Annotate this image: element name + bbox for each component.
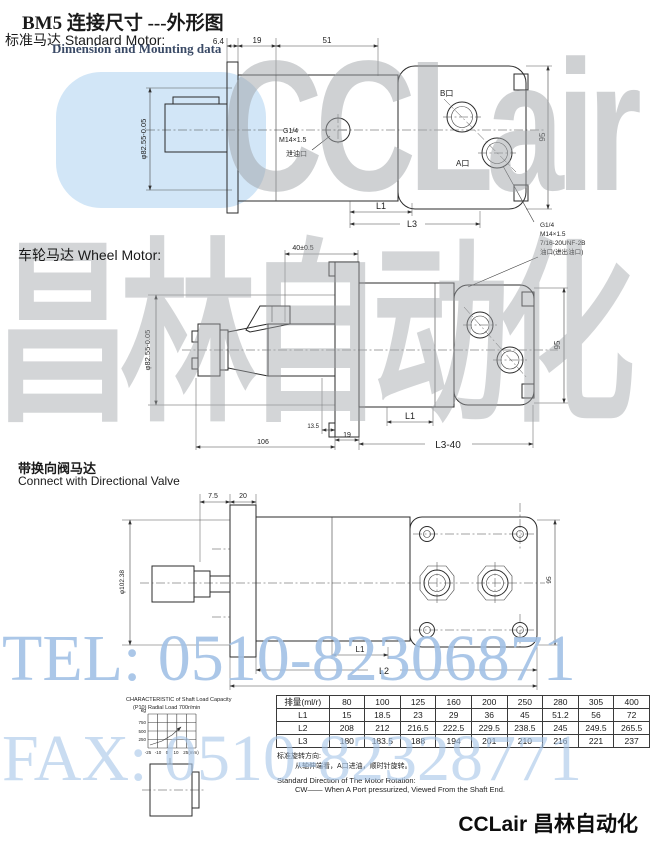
- table-cell: 249.5: [578, 722, 614, 735]
- section-wheel-motor-en: Wheel Motor:: [78, 247, 161, 263]
- dim-label: L3-40: [435, 440, 461, 451]
- ports-note: G1/4 M14×1.5 7/16-20UNF-2B 油口(进出油口): [468, 166, 586, 287]
- table-row-label: 排量(ml/r): [277, 696, 330, 709]
- dim-label: L2: [379, 666, 389, 676]
- inset-x-tick: -10: [155, 750, 162, 755]
- table-cell: 56: [578, 709, 614, 722]
- table-cell: 305: [578, 696, 614, 709]
- section-wheel-motor-label: 车轮马达 Wheel Motor:: [18, 245, 161, 265]
- dim-label: L3: [407, 219, 417, 229]
- table-cell: 222.5: [436, 722, 472, 735]
- table-cell: 194: [436, 735, 472, 748]
- table-cell: 216.5: [400, 722, 436, 735]
- dim-label-shaft-diameter: φ102.38: [119, 570, 126, 594]
- table-cell: 216: [543, 735, 579, 748]
- inset-chart-grid: [148, 714, 196, 748]
- inset-x-tick: 0: [166, 750, 169, 755]
- drawing-wheel-motor: 40±0.5 φ82.55-0.05: [143, 245, 568, 451]
- drawing-standard-motor: 6.4 19 51 φ82.55-0.05 G1/4 M14×1.5 泄油口: [139, 36, 552, 229]
- dimension-table: 排量(ml/r)80100125160200250280305400L11518…: [276, 695, 650, 748]
- inset-x-tick: 10: [173, 750, 179, 755]
- table-cell: 180: [329, 735, 364, 748]
- dim-label: 19: [343, 432, 351, 439]
- ports-note-line: M14×1.5: [540, 231, 566, 238]
- note-en-body: CW—— When A Port pressurized, Viewed Fro…: [295, 785, 505, 794]
- table-cell: 229.5: [471, 722, 507, 735]
- table-row-label: L1: [277, 709, 330, 722]
- table-cell: 245: [543, 722, 579, 735]
- dim-label: 13.5: [307, 424, 319, 430]
- port-b-label: B口: [440, 89, 453, 98]
- dim-label-shaft-diameter: φ82.55-0.05: [143, 330, 152, 371]
- inset-y-tick: 500: [138, 729, 146, 734]
- section-valve-motor-en: Connect with Directional Valve: [18, 474, 180, 488]
- table-row: L3180183.5188194201210216221237: [277, 735, 650, 748]
- table-cell: 80: [329, 696, 364, 709]
- table-cell: 237: [614, 735, 650, 748]
- section-wheel-motor-cn: 车轮马达: [18, 247, 74, 263]
- page-subtitle: Dimension and Mounting data: [52, 41, 221, 57]
- rotation-notes: 标准旋转方向: 从轴伸端看，A口进油，顺时针旋转。 Standard Direc…: [277, 751, 505, 794]
- note-cn-body: 从轴伸端看，A口进油，顺时针旋转。: [295, 761, 505, 771]
- dim-label: 95: [546, 576, 553, 584]
- table-cell: 280: [543, 696, 579, 709]
- inset-x-tick: 25(mm): [183, 750, 199, 755]
- footer-brand: CCLair 昌林自动化: [458, 808, 638, 838]
- table-cell: 250: [507, 696, 543, 709]
- table-row: L2208212216.5222.5229.5238.5245249.5265.…: [277, 722, 650, 735]
- ports-note-line: G1/4: [540, 222, 554, 229]
- table-cell: 201: [471, 735, 507, 748]
- dim-label: 106: [257, 439, 269, 446]
- table-cell: 160: [436, 696, 472, 709]
- note-en-title: Standard Direction of The Motor Rotation…: [277, 776, 505, 785]
- dim-label-shaft-diameter: φ82.55-0.05: [139, 119, 148, 160]
- table-cell: 72: [614, 709, 650, 722]
- port-a-label: A口: [456, 159, 469, 168]
- table-cell: 265.5: [614, 722, 650, 735]
- dim-label: 51: [323, 36, 332, 45]
- dim-label: 19: [253, 36, 262, 45]
- dimension-table-wrap: 排量(ml/r)80100125160200250280305400L11518…: [276, 695, 650, 748]
- drain-port-label: M14×1.5: [279, 137, 307, 144]
- inset-y-tick: 750: [138, 720, 146, 725]
- table-cell: 18.5: [365, 709, 401, 722]
- table-cell: 100: [365, 696, 401, 709]
- table-cell: 125: [400, 696, 436, 709]
- table-row-label: L3: [277, 735, 330, 748]
- inset-motor-outline: [142, 758, 206, 816]
- ports-note-line: 油口(进出油口): [540, 247, 583, 256]
- inset-y-unit: kg: [141, 708, 147, 714]
- dim-label: 7.5: [208, 493, 218, 500]
- table-cell: 212: [365, 722, 401, 735]
- drain-port-label: G1/4: [283, 128, 298, 135]
- table-cell: 23: [400, 709, 436, 722]
- table-cell: 221: [578, 735, 614, 748]
- table-cell: 210: [507, 735, 543, 748]
- table-header-row: 排量(ml/r)80100125160200250280305400: [277, 696, 650, 709]
- note-cn-title: 标准旋转方向:: [277, 751, 505, 761]
- table-cell: 51.2: [543, 709, 579, 722]
- table-cell: 400: [614, 696, 650, 709]
- dim-label: 20: [239, 493, 247, 500]
- dim-label: 40±0.5: [292, 245, 313, 252]
- dim-label: L1: [356, 645, 365, 654]
- inset-caption: CHARACTERISTIC of Shaft Load Capacity: [126, 697, 232, 703]
- dim-label: L1: [405, 411, 415, 421]
- table-cell: 238.5: [507, 722, 543, 735]
- table-cell: 36: [471, 709, 507, 722]
- dim-label: 95: [538, 132, 547, 141]
- table-cell: 200: [471, 696, 507, 709]
- drain-port-label: 泄油口: [286, 149, 307, 158]
- load-chart-inset: CHARACTERISTIC of Shaft Load Capacity (P…: [126, 697, 232, 816]
- datasheet-page: 6.4 19 51 φ82.55-0.05 G1/4 M14×1.5 泄油口: [0, 0, 650, 844]
- drawing-valve-motor: 7.5 20 φ102.38: [119, 493, 560, 690]
- dim-label: L1: [376, 201, 386, 211]
- table-cell: 208: [329, 722, 364, 735]
- ports-note-line: 7/16-20UNF-2B: [540, 240, 586, 247]
- table-row: L11518.52329364551.25672: [277, 709, 650, 722]
- table-cell: 45: [507, 709, 543, 722]
- table-cell: 183.5: [365, 735, 401, 748]
- inset-x-tick: -25: [145, 750, 152, 755]
- table-row-label: L2: [277, 722, 330, 735]
- dim-label: 95: [553, 340, 562, 349]
- table-cell: 29: [436, 709, 472, 722]
- table-cell: 188: [400, 735, 436, 748]
- inset-y-tick: 250: [138, 737, 146, 742]
- table-cell: 15: [329, 709, 364, 722]
